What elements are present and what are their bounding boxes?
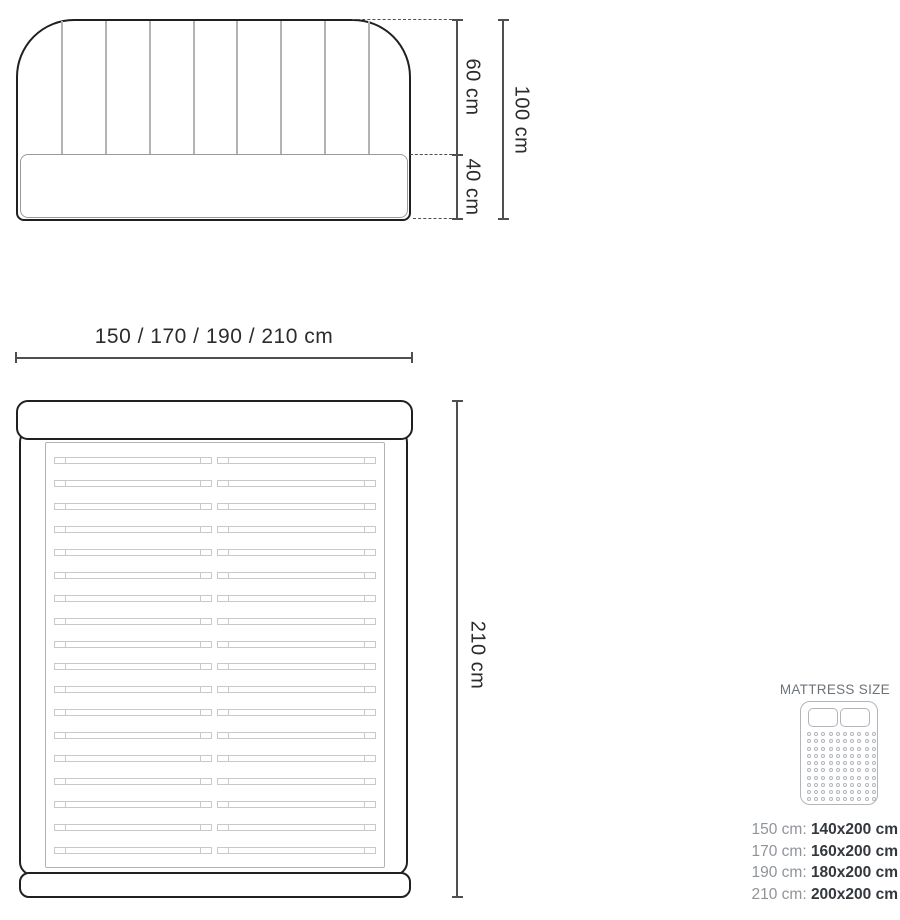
mattress-dot (821, 754, 825, 758)
tufting-line (280, 21, 282, 155)
slat-half (217, 824, 376, 831)
mattress-dot (807, 732, 811, 736)
mattress-dot (821, 761, 825, 765)
mattress-dot (865, 783, 869, 787)
slat-half (217, 503, 376, 510)
mattress-dot (850, 739, 854, 743)
mattress-dot (850, 732, 854, 736)
mattress-dot (807, 776, 811, 780)
slat-half (217, 663, 376, 670)
slat-half (54, 663, 212, 670)
headboard-height-label: 60 cm (461, 59, 484, 116)
slat-half (217, 847, 376, 854)
slat-cap (65, 756, 66, 761)
mattress-dot (836, 776, 840, 780)
mattress-dot (872, 797, 876, 801)
slat-cap (65, 664, 66, 669)
slat-cap (200, 550, 201, 555)
mattress-dot (865, 761, 869, 765)
mattress-dot (850, 790, 854, 794)
mattress-dot (836, 768, 840, 772)
slat-cap (200, 458, 201, 463)
slat-cap (65, 825, 66, 830)
mattress-size-table: 150 cm: 140x200 cm170 cm: 160x200 cm190 … (751, 819, 898, 905)
mattress-dot (872, 776, 876, 780)
slat-cap (228, 619, 229, 624)
pillow-icon (808, 708, 838, 727)
width-dimension-line (16, 357, 412, 359)
mattress-dot (843, 797, 847, 801)
mattress-dot (814, 761, 818, 765)
bed-base-front-outline (20, 154, 408, 218)
slat-cap (65, 596, 66, 601)
dimension-line-210 (456, 401, 458, 898)
slat-cap (65, 481, 66, 486)
slat-cap (228, 848, 229, 853)
slat-half (54, 847, 212, 854)
dim-tick (452, 400, 463, 402)
frame-size-label: 210 cm: (751, 886, 810, 903)
slat-cap (364, 710, 365, 715)
slat-cap (228, 802, 229, 807)
slat-half (217, 595, 376, 602)
mattress-dot (872, 754, 876, 758)
slat-cap (65, 550, 66, 555)
mattress-dot (850, 761, 854, 765)
slat-cap (364, 825, 365, 830)
mattress-dot (829, 761, 833, 765)
slat-half (217, 618, 376, 625)
width-dimension-label: 150 / 170 / 190 / 210 cm (95, 325, 334, 349)
mattress-dot (872, 768, 876, 772)
mattress-dot (836, 754, 840, 758)
slat-half (217, 778, 376, 785)
mattress-dot (850, 797, 854, 801)
slat-half (217, 549, 376, 556)
mattress-dot (821, 732, 825, 736)
slat-half (54, 732, 212, 739)
mattress-dot (836, 732, 840, 736)
mattress-dot (821, 790, 825, 794)
slat-cap (228, 596, 229, 601)
mattress-dot (814, 790, 818, 794)
mattress-size-value: 160x200 cm (811, 843, 898, 860)
mattress-dot (865, 739, 869, 743)
slat-half (54, 778, 212, 785)
slat-cap (228, 733, 229, 738)
total-height-label: 100 cm (510, 86, 533, 155)
tufting-line (193, 21, 195, 155)
dim-tick (452, 154, 463, 156)
mattress-dot (829, 797, 833, 801)
mattress-dot (857, 761, 861, 765)
mattress-dot (829, 783, 833, 787)
slat-cap (200, 687, 201, 692)
slat-half (54, 755, 212, 762)
slat-cap (364, 619, 365, 624)
slat-cap (65, 848, 66, 853)
slat-cap (228, 756, 229, 761)
slat-half (54, 480, 212, 487)
dim-tick (452, 218, 463, 220)
slat-cap (228, 504, 229, 509)
mattress-size-title: MATTRESS SIZE (780, 682, 890, 697)
slat-half (217, 526, 376, 533)
mattress-size-value: 180x200 cm (811, 864, 898, 881)
slat-half (54, 572, 212, 579)
slat-cap (228, 664, 229, 669)
mattress-dot (843, 783, 847, 787)
mattress-dot (843, 790, 847, 794)
headboard-top-view (16, 400, 413, 440)
mattress-dot (829, 747, 833, 751)
slat-half (217, 572, 376, 579)
mattress-dot (829, 776, 833, 780)
mattress-dot (836, 747, 840, 751)
slat-cap (200, 619, 201, 624)
slat-cap (65, 710, 66, 715)
slat-cap (228, 825, 229, 830)
slat-cap (65, 779, 66, 784)
slat-cap (200, 710, 201, 715)
dimension-line-60-40 (456, 20, 458, 220)
slat-half (217, 732, 376, 739)
slat-half (54, 526, 212, 533)
mattress-dot (843, 739, 847, 743)
slat-half (217, 755, 376, 762)
slat-half (54, 709, 212, 716)
dim-tick (498, 19, 509, 21)
pillow-icon (840, 708, 870, 727)
slat-half (217, 641, 376, 648)
mattress-dot (872, 739, 876, 743)
slat-cap (228, 550, 229, 555)
slat-cap (228, 527, 229, 532)
slat-cap (65, 573, 66, 578)
slat-cap (364, 481, 365, 486)
mattress-dot (850, 754, 854, 758)
mattress-dot (829, 790, 833, 794)
slat-half (217, 709, 376, 716)
slat-half (54, 457, 212, 464)
slat-cap (200, 481, 201, 486)
slat-half (217, 801, 376, 808)
mattress-dot (857, 754, 861, 758)
slat-cap (228, 687, 229, 692)
slat-cap (200, 756, 201, 761)
slat-cap (200, 848, 201, 853)
mattress-dot (872, 761, 876, 765)
slat-cap (228, 481, 229, 486)
slat-half (54, 824, 212, 831)
tufting-line (61, 21, 63, 155)
frame-size-label: 190 cm: (751, 864, 810, 881)
slat-cap (200, 504, 201, 509)
tufting-line (105, 21, 107, 155)
slat-cap (364, 504, 365, 509)
mattress-dot (807, 754, 811, 758)
mattress-dot (829, 739, 833, 743)
footboard-top-view (19, 872, 411, 898)
mattress-dot (850, 776, 854, 780)
extension-dash-top (352, 19, 457, 20)
slat-half (217, 686, 376, 693)
dim-tick (411, 352, 413, 363)
dim-tick (452, 896, 463, 898)
frame-size-label: 170 cm: (751, 843, 810, 860)
slat-half (54, 549, 212, 556)
slat-half (54, 801, 212, 808)
mattress-dot (807, 768, 811, 772)
mattress-dot (857, 747, 861, 751)
base-height-label: 40 cm (461, 159, 484, 216)
dimension-line-100 (502, 20, 504, 220)
mattress-dot (836, 797, 840, 801)
mattress-dot (857, 783, 861, 787)
slat-cap (364, 733, 365, 738)
slat-cap (200, 825, 201, 830)
mattress-dot (814, 739, 818, 743)
mattress-dot (821, 797, 825, 801)
mattress-size-row: 210 cm: 200x200 cm (751, 884, 898, 906)
slat-cap (65, 458, 66, 463)
mattress-dot (850, 768, 854, 772)
frame-size-label: 150 cm: (751, 821, 810, 838)
mattress-dot (814, 797, 818, 801)
mattress-size-row: 170 cm: 160x200 cm (751, 841, 898, 863)
slat-half (54, 595, 212, 602)
mattress-dot (807, 761, 811, 765)
mattress-dot (814, 732, 818, 736)
mattress-dot (821, 776, 825, 780)
slat-cap (200, 779, 201, 784)
dim-tick (452, 19, 463, 21)
mattress-dot (865, 747, 869, 751)
mattress-dot (836, 790, 840, 794)
slat-half (217, 480, 376, 487)
mattress-dot (872, 790, 876, 794)
mattress-dot (843, 747, 847, 751)
mattress-size-row: 150 cm: 140x200 cm (751, 819, 898, 841)
mattress-dot (857, 768, 861, 772)
slat-cap (364, 527, 365, 532)
slat-cap (228, 458, 229, 463)
length-dimension-label: 210 cm (466, 621, 489, 690)
mattress-dot (814, 783, 818, 787)
mattress-dot (865, 754, 869, 758)
mattress-dot (843, 776, 847, 780)
mattress-dot (857, 776, 861, 780)
slat-cap (65, 802, 66, 807)
mattress-dot (865, 768, 869, 772)
extension-dash-middle (410, 154, 457, 155)
mattress-size-value: 140x200 cm (811, 821, 898, 838)
dim-tick (498, 218, 509, 220)
tufting-line (149, 21, 151, 155)
mattress-dot (821, 768, 825, 772)
mattress-dot (857, 732, 861, 736)
bed-dimensions-diagram: 60 cm 40 cm 100 cm 150 / 170 / 190 / 210… (0, 0, 900, 920)
slat-cap (364, 756, 365, 761)
mattress-dot (836, 761, 840, 765)
slat-cap (364, 779, 365, 784)
mattress-dot (829, 732, 833, 736)
slat-half (54, 686, 212, 693)
slat-cap (65, 687, 66, 692)
mattress-dot (857, 797, 861, 801)
mattress-dot (836, 739, 840, 743)
mattress-dot (872, 732, 876, 736)
tufting-line (368, 21, 370, 155)
mattress-dot (865, 732, 869, 736)
mattress-dot (843, 761, 847, 765)
slat-cap (228, 642, 229, 647)
mattress-size-row: 190 cm: 180x200 cm (751, 862, 898, 884)
mattress-dot (857, 790, 861, 794)
slat-cap (364, 458, 365, 463)
slat-cap (364, 687, 365, 692)
slat-cap (364, 596, 365, 601)
slat-cap (200, 733, 201, 738)
mattress-dot (807, 747, 811, 751)
mattress-dot (865, 776, 869, 780)
mattress-dot (814, 754, 818, 758)
mattress-size-value: 200x200 cm (811, 886, 898, 903)
mattress-dot (850, 783, 854, 787)
slat-cap (364, 573, 365, 578)
slat-half (54, 618, 212, 625)
mattress-icon (800, 701, 878, 805)
mattress-dot (807, 797, 811, 801)
slat-half (54, 503, 212, 510)
slat-cap (200, 664, 201, 669)
tufting-line (324, 21, 326, 155)
slat-cap (65, 642, 66, 647)
mattress-dot (821, 747, 825, 751)
mattress-dot (857, 739, 861, 743)
mattress-dot (865, 790, 869, 794)
slat-cap (228, 779, 229, 784)
mattress-dot (814, 747, 818, 751)
mattress-dot (872, 747, 876, 751)
dim-tick (15, 352, 17, 363)
mattress-dot (865, 797, 869, 801)
mattress-dot (836, 783, 840, 787)
slat-cap (364, 550, 365, 555)
mattress-dot (843, 754, 847, 758)
mattress-dot (843, 768, 847, 772)
mattress-dot (872, 783, 876, 787)
extension-dash-bottom (413, 218, 457, 219)
slat-cap (364, 664, 365, 669)
mattress-dot (829, 768, 833, 772)
slat-cap (364, 642, 365, 647)
mattress-dot (843, 732, 847, 736)
slat-half (54, 641, 212, 648)
mattress-dot (821, 783, 825, 787)
mattress-dot (821, 739, 825, 743)
slat-cap (65, 619, 66, 624)
slat-cap (200, 527, 201, 532)
slat-cap (200, 596, 201, 601)
slat-cap (364, 848, 365, 853)
slat-cap (200, 642, 201, 647)
mattress-dot (807, 783, 811, 787)
slat-cap (65, 504, 66, 509)
tufting-line (236, 21, 238, 155)
slat-cap (200, 802, 201, 807)
slat-cap (364, 802, 365, 807)
slat-cap (200, 573, 201, 578)
slat-cap (228, 573, 229, 578)
slat-cap (65, 527, 66, 532)
mattress-dot (807, 739, 811, 743)
mattress-dot (814, 776, 818, 780)
mattress-dot (850, 747, 854, 751)
mattress-dot (829, 754, 833, 758)
mattress-dot (807, 790, 811, 794)
slat-cap (65, 733, 66, 738)
mattress-dot (814, 768, 818, 772)
slat-cap (228, 710, 229, 715)
slat-half (217, 457, 376, 464)
